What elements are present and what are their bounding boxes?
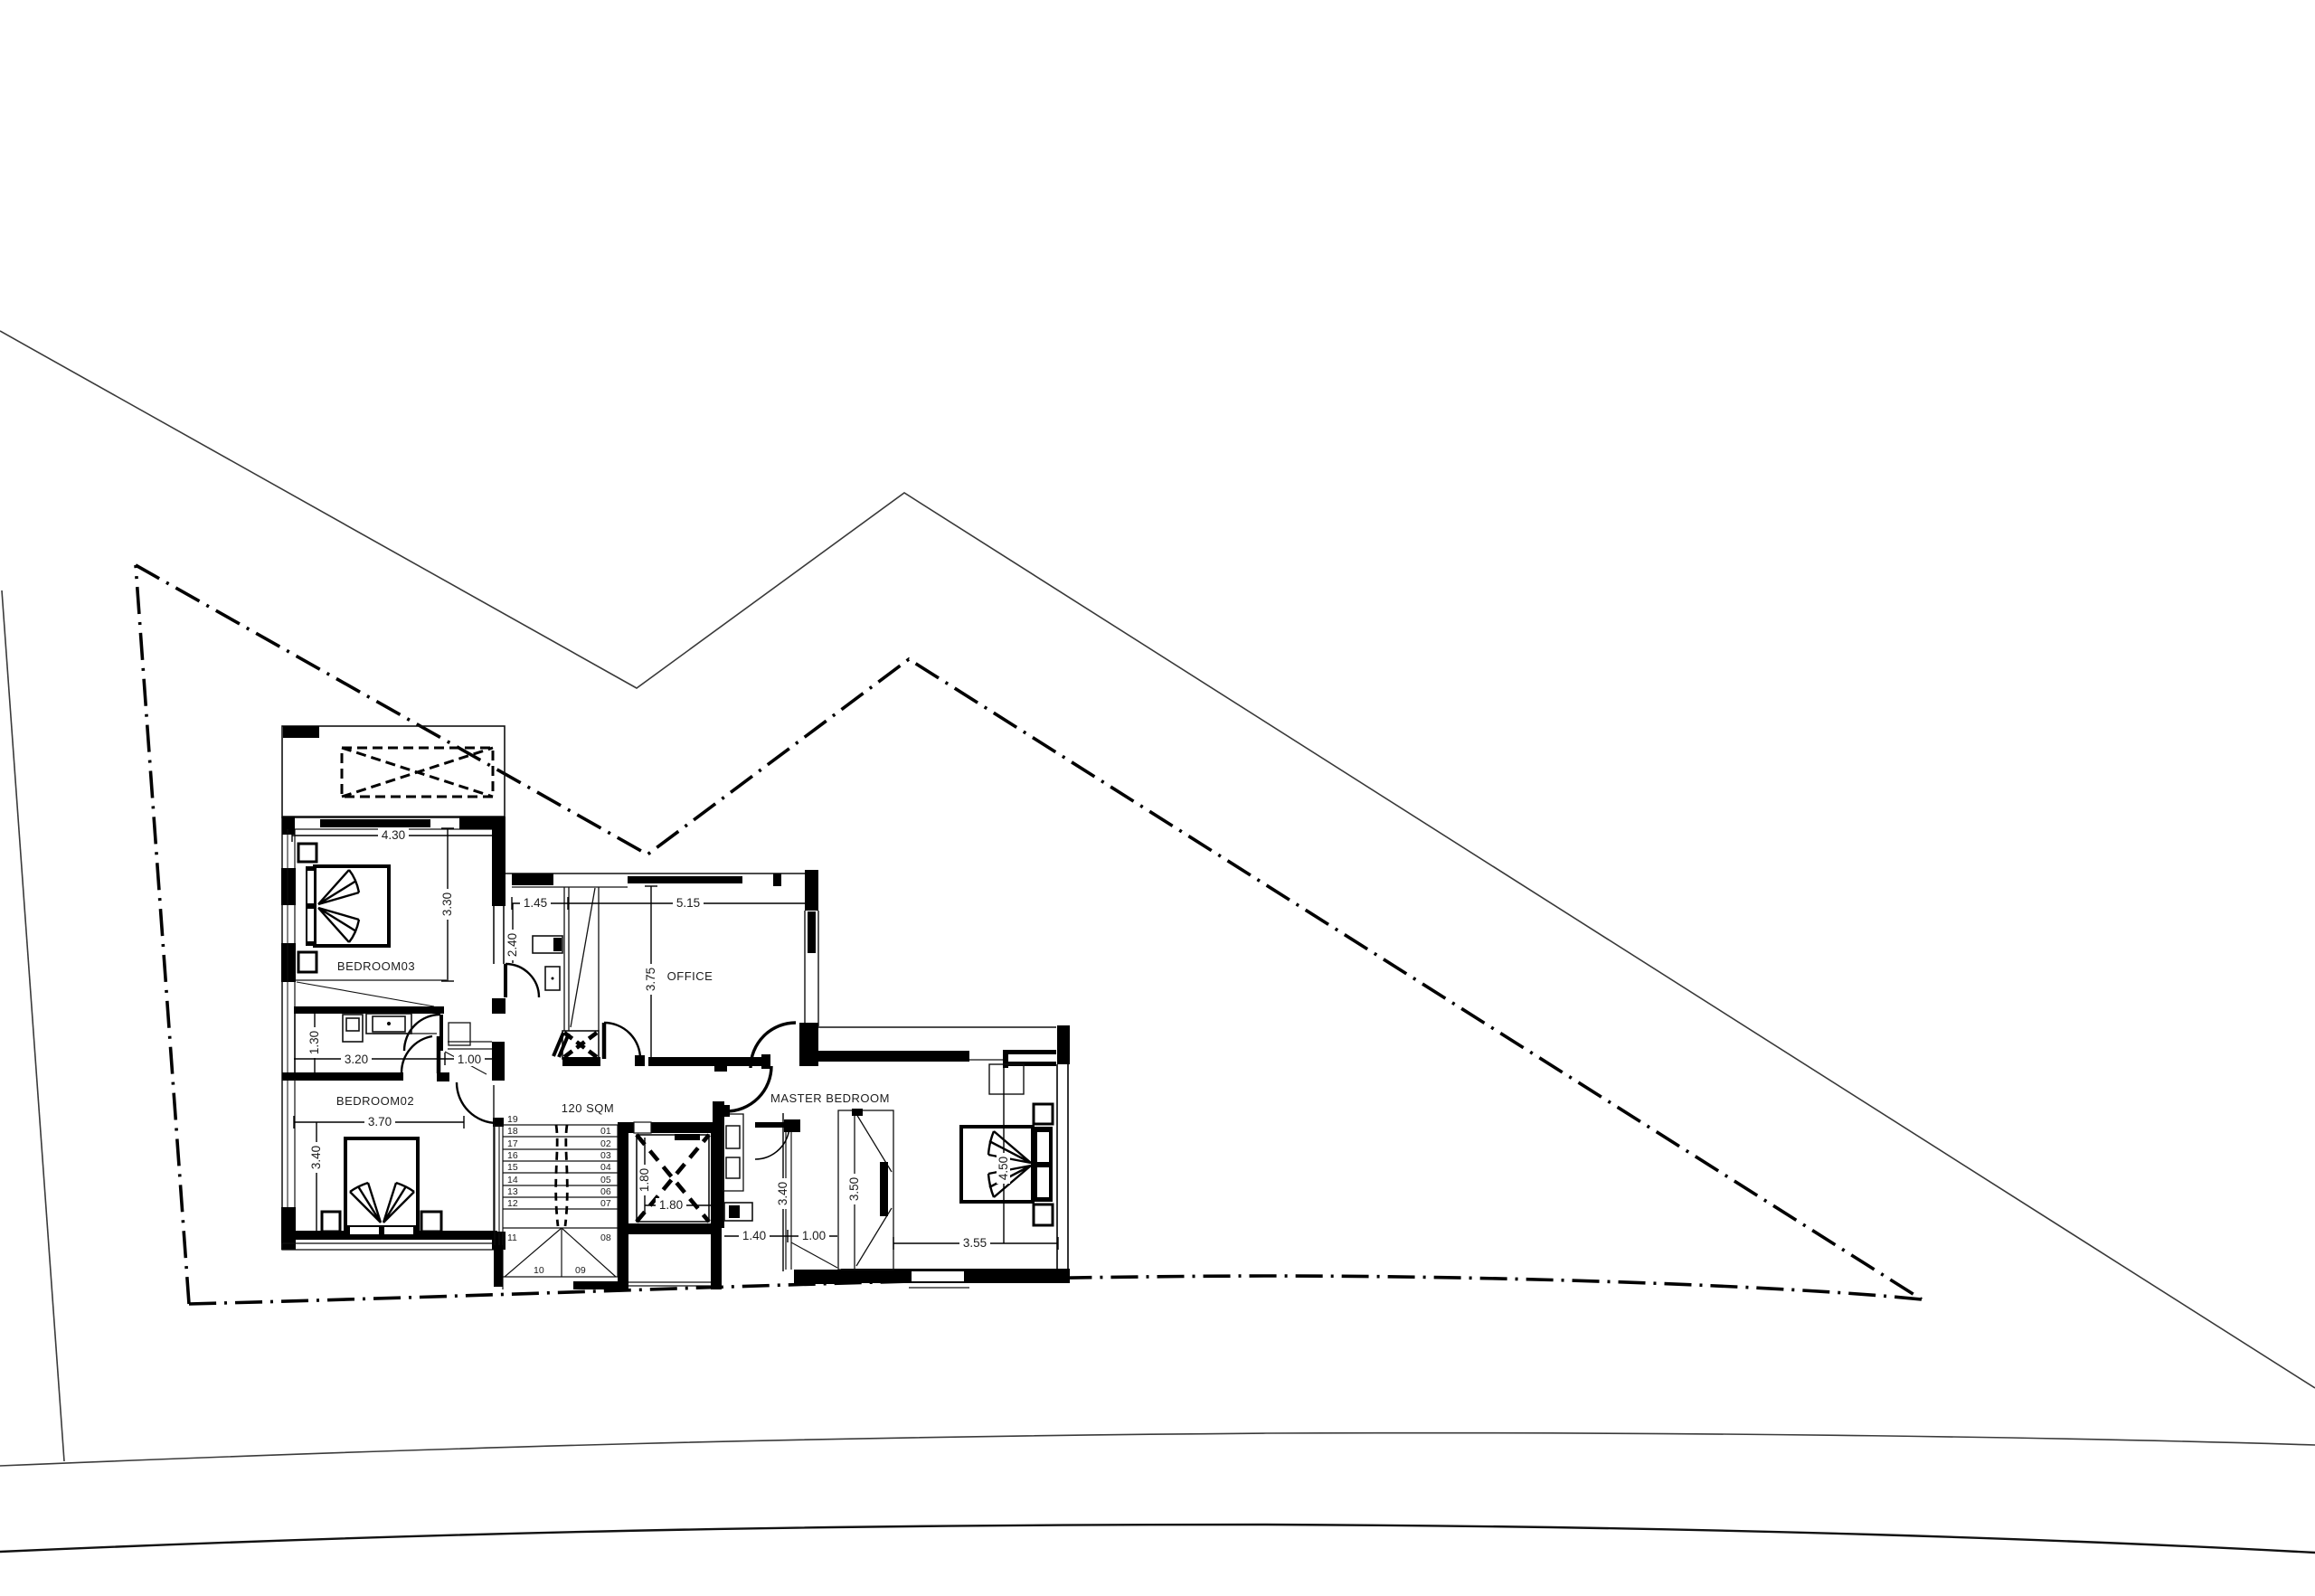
svg-text:16: 16: [507, 1150, 518, 1161]
svg-text:13: 13: [507, 1186, 518, 1197]
svg-text:BEDROOM03: BEDROOM03: [337, 959, 415, 973]
svg-text:3.20: 3.20: [345, 1053, 368, 1066]
svg-text:3.70: 3.70: [368, 1115, 392, 1129]
svg-text:19: 19: [507, 1114, 518, 1125]
svg-text:MASTER BEDROOM: MASTER BEDROOM: [770, 1091, 890, 1105]
svg-text:3.30: 3.30: [440, 892, 454, 916]
svg-text:03: 03: [600, 1150, 611, 1161]
svg-text:10: 10: [534, 1265, 544, 1276]
svg-text:4.50: 4.50: [997, 1157, 1010, 1180]
svg-text:2.40: 2.40: [506, 933, 519, 957]
svg-text:4.30: 4.30: [382, 828, 405, 842]
svg-text:3.55: 3.55: [963, 1236, 987, 1250]
svg-text:06: 06: [600, 1186, 611, 1197]
svg-text:02: 02: [600, 1138, 611, 1149]
svg-text:07: 07: [600, 1198, 611, 1209]
svg-text:OFFICE: OFFICE: [667, 969, 713, 983]
svg-text:1.00: 1.00: [458, 1053, 481, 1066]
svg-text:1.80: 1.80: [659, 1198, 683, 1212]
svg-text:12: 12: [507, 1198, 518, 1209]
svg-text:5.15: 5.15: [676, 896, 700, 910]
svg-text:17: 17: [507, 1138, 518, 1149]
svg-text:11: 11: [507, 1232, 517, 1243]
svg-text:08: 08: [600, 1232, 611, 1243]
svg-text:1.45: 1.45: [524, 896, 547, 910]
svg-text:3.40: 3.40: [776, 1182, 789, 1205]
svg-text:120 SQM: 120 SQM: [562, 1101, 614, 1115]
svg-text:3.50: 3.50: [847, 1177, 861, 1201]
svg-text:1.30: 1.30: [307, 1031, 321, 1054]
svg-text:1.00: 1.00: [802, 1229, 826, 1242]
svg-text:18: 18: [507, 1126, 518, 1137]
svg-text:3.40: 3.40: [309, 1146, 323, 1169]
svg-text:1.80: 1.80: [638, 1168, 651, 1192]
svg-text:05: 05: [600, 1175, 611, 1185]
svg-text:09: 09: [575, 1265, 586, 1276]
svg-text:14: 14: [507, 1175, 518, 1185]
svg-text:1.40: 1.40: [742, 1229, 766, 1242]
svg-text:BEDROOM02: BEDROOM02: [336, 1094, 414, 1108]
svg-text:15: 15: [507, 1162, 518, 1173]
svg-text:04: 04: [600, 1162, 611, 1173]
svg-text:3.75: 3.75: [644, 968, 657, 991]
svg-text:01: 01: [600, 1126, 611, 1137]
